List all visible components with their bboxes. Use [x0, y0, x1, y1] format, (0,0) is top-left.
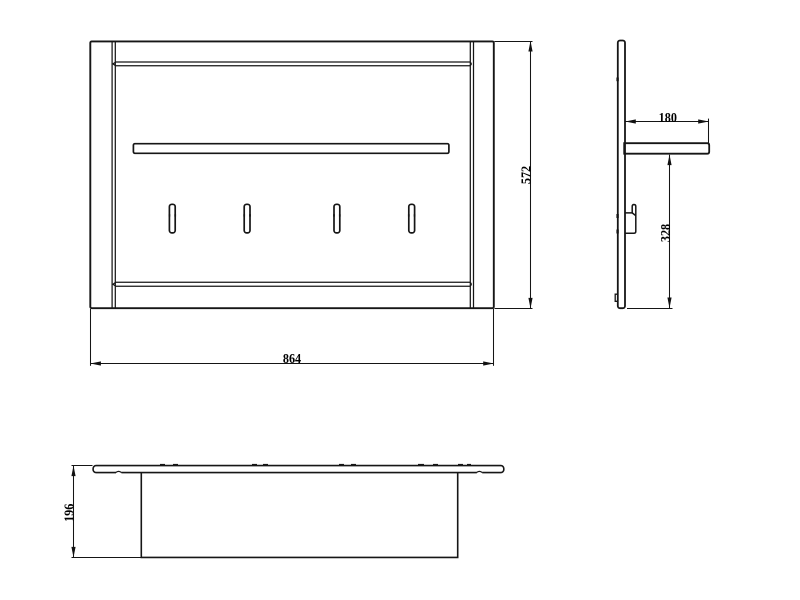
svg-text:180: 180	[659, 109, 678, 125]
svg-text:864: 864	[283, 350, 302, 366]
svg-text:572: 572	[518, 166, 534, 184]
svg-text:328: 328	[657, 223, 673, 242]
svg-text:196: 196	[61, 503, 77, 522]
